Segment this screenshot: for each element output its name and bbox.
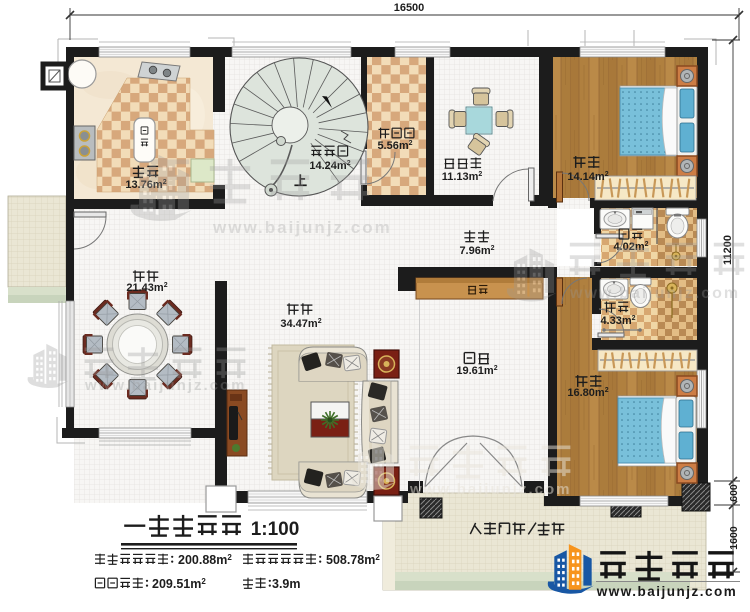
svg-text:16500: 16500 [394, 2, 425, 14]
svg-text:www.baijunjz.com: www.baijunjz.com [84, 377, 246, 394]
svg-text:www.baijunjz.com: www.baijunjz.com [596, 584, 738, 599]
svg-text:19.61m2: 19.61m2 [456, 365, 497, 377]
svg-text:21.43m2: 21.43m2 [126, 282, 167, 294]
svg-text:1:100: 1:100 [251, 519, 300, 540]
svg-text:1600: 1600 [728, 526, 740, 550]
svg-text:5.56m2: 5.56m2 [377, 140, 412, 152]
svg-text:14.14m2: 14.14m2 [567, 171, 608, 183]
svg-text:11200: 11200 [722, 235, 734, 265]
svg-text:16.80m2: 16.80m2 [567, 387, 608, 399]
svg-text:200.88m2: 200.88m2 [178, 553, 232, 567]
svg-text:34.47m2: 34.47m2 [280, 318, 321, 330]
svg-text:4.33m2: 4.33m2 [600, 315, 635, 327]
svg-text:7.96m2: 7.96m2 [459, 245, 494, 257]
svg-text:www.baijunjz.com: www.baijunjz.com [212, 218, 392, 237]
svg-text:508.78m2: 508.78m2 [326, 553, 380, 567]
svg-text:209.51m2: 209.51m2 [152, 577, 206, 591]
svg-text:www.baijunjz.com: www.baijunjz.com [569, 285, 740, 302]
svg-text:11.13m2: 11.13m2 [442, 171, 483, 183]
svg-text:600: 600 [728, 484, 740, 502]
svg-text:www.baijunjz.com: www.baijunjz.com [409, 481, 571, 498]
svg-text:3.9m: 3.9m [272, 577, 301, 591]
